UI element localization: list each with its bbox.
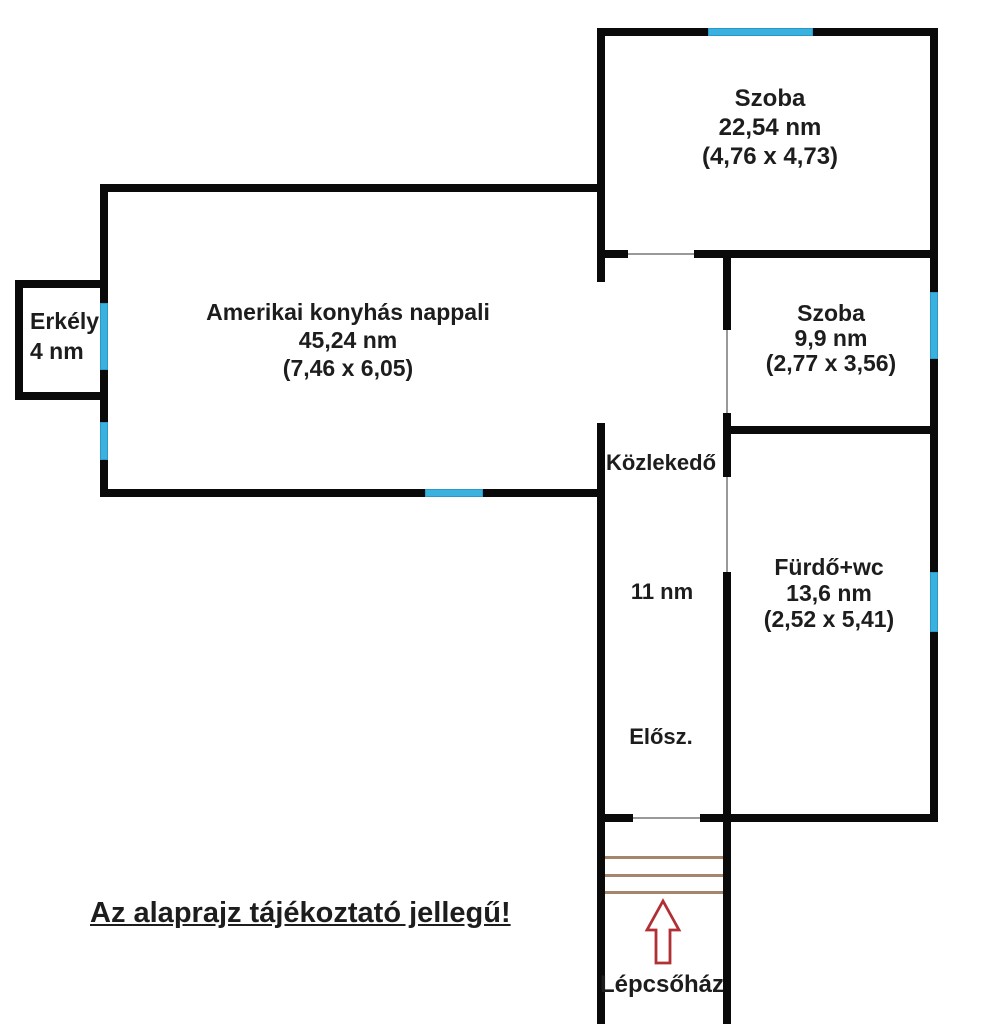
wall [597, 423, 605, 1024]
wall [597, 814, 633, 822]
room-area: 45,24 nm [206, 326, 490, 354]
room-label-kozlekedo: Közlekedő [606, 451, 716, 475]
door-opening [726, 477, 728, 572]
wall [100, 489, 605, 497]
wall [723, 255, 731, 330]
room-name: Fürdő+wc [764, 554, 894, 580]
window-marker [930, 292, 938, 359]
window-marker [708, 28, 813, 36]
wall [15, 280, 23, 400]
room-label-lepcsohaz: Lépcsőház [600, 970, 724, 999]
room-dimensions: (2,52 x 5,41) [764, 606, 894, 632]
room-dimensions: (4,76 x 4,73) [702, 142, 838, 171]
room-label-szoba-kis: Szoba 9,9 nm (2,77 x 3,56) [766, 301, 896, 376]
room-name: Szoba [702, 84, 838, 113]
stair-step-line [605, 891, 723, 894]
window-marker [930, 572, 938, 632]
up-arrow-icon [643, 898, 683, 966]
room-area: 4 nm [30, 336, 99, 366]
room-label-nappali: Amerikai konyhás nappali 45,24 nm (7,46 … [206, 298, 490, 382]
wall [597, 250, 628, 258]
room-name: Amerikai konyhás nappali [206, 298, 490, 326]
room-label-furdo: Fürdő+wc 13,6 nm (2,52 x 5,41) [764, 554, 894, 632]
wall [700, 814, 938, 822]
room-dimensions: (2,77 x 3,56) [766, 351, 896, 376]
door-opening [633, 817, 700, 819]
window-marker [425, 489, 483, 497]
room-area: 22,54 nm [702, 113, 838, 142]
window-marker [100, 303, 108, 370]
room-label-erkely: Erkély 4 nm [30, 306, 99, 366]
room-name: Erkély [30, 306, 99, 336]
room-area: 13,6 nm [764, 580, 894, 606]
wall [597, 28, 605, 282]
wall [723, 572, 731, 822]
room-area: 9,9 nm [766, 326, 896, 351]
floor-plan: Szoba 22,54 nm (4,76 x 4,73) Amerikai ko… [0, 0, 982, 1024]
room-dimensions: (7,46 x 6,05) [206, 354, 490, 382]
wall [100, 184, 605, 192]
wall [15, 280, 103, 288]
wall [15, 392, 103, 400]
room-name: Szoba [766, 301, 896, 326]
stair-step-line [605, 856, 723, 859]
wall [723, 413, 731, 477]
wall [723, 822, 731, 1024]
door-opening [628, 253, 694, 255]
window-marker [100, 422, 108, 460]
stair-step-line [605, 874, 723, 877]
wall [723, 426, 938, 434]
door-opening [726, 330, 728, 413]
room-label-eloszoba: Elősz. [629, 725, 693, 749]
room-label-kozlekedo-area: 11 nm [631, 580, 693, 604]
room-label-szoba-nagy: Szoba 22,54 nm (4,76 x 4,73) [702, 84, 838, 171]
wall [930, 28, 938, 822]
disclaimer-text: Az alaprajz tájékoztató jellegű! [90, 896, 511, 930]
